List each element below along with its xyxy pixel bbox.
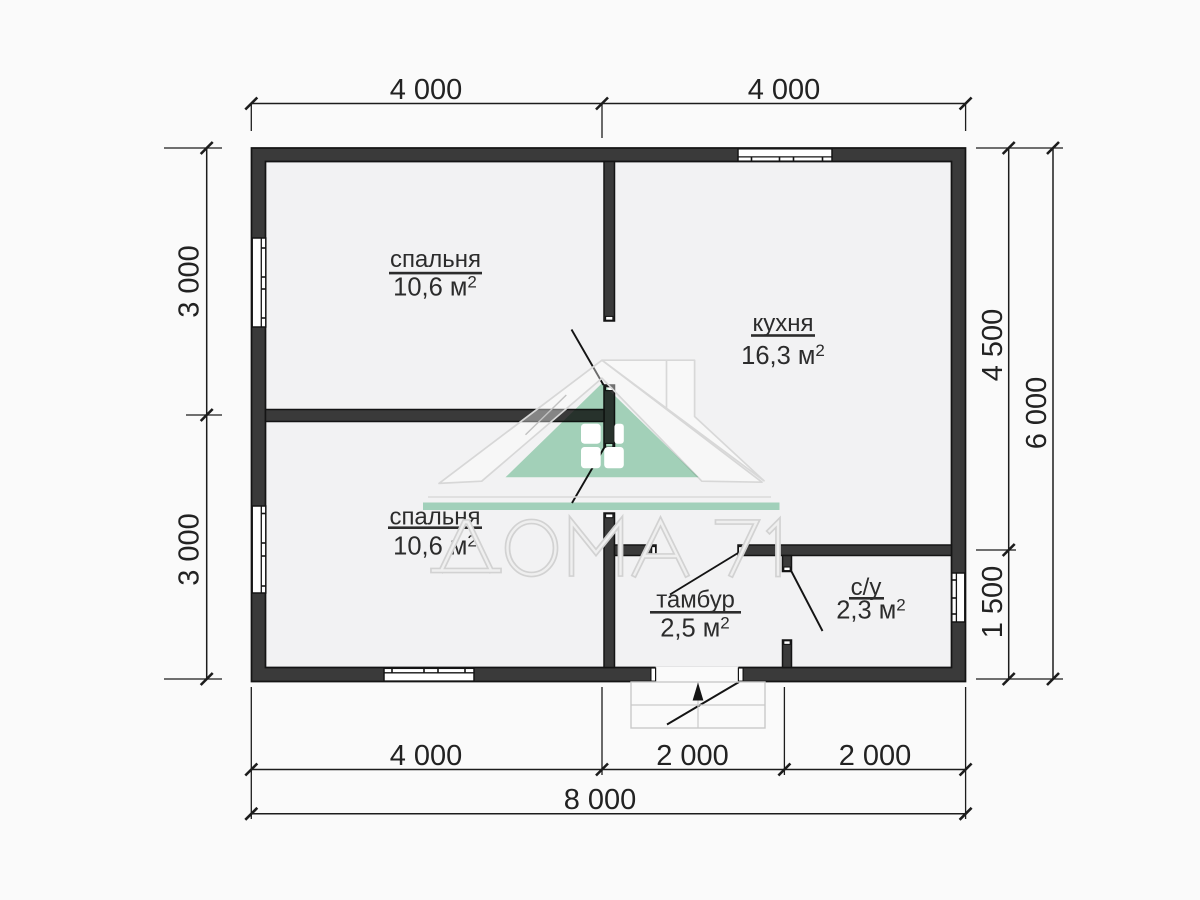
svg-text:16,3 м2: 16,3 м2: [741, 341, 825, 370]
svg-text:4 000: 4 000: [748, 74, 821, 106]
svg-text:10,6 м2: 10,6 м2: [393, 532, 477, 561]
svg-text:3 000: 3 000: [174, 245, 206, 318]
svg-text:2,3 м2: 2,3 м2: [836, 596, 906, 625]
svg-text:3 000: 3 000: [174, 513, 206, 586]
svg-text:спальня: спальня: [390, 246, 481, 273]
svg-text:8 000: 8 000: [564, 784, 637, 816]
svg-text:4 000: 4 000: [390, 740, 463, 772]
svg-text:2,5 м2: 2,5 м2: [660, 614, 730, 643]
svg-text:1 500: 1 500: [977, 566, 1009, 639]
svg-text:кухня: кухня: [752, 310, 813, 337]
svg-text:4 500: 4 500: [977, 309, 1009, 382]
svg-text:тамбур: тамбур: [656, 587, 735, 614]
svg-text:6 000: 6 000: [1021, 377, 1053, 450]
svg-text:2 000: 2 000: [839, 740, 912, 772]
svg-text:10,6 м2: 10,6 м2: [393, 273, 477, 302]
svg-text:2 000: 2 000: [656, 740, 729, 772]
svg-text:4 000: 4 000: [390, 74, 463, 106]
